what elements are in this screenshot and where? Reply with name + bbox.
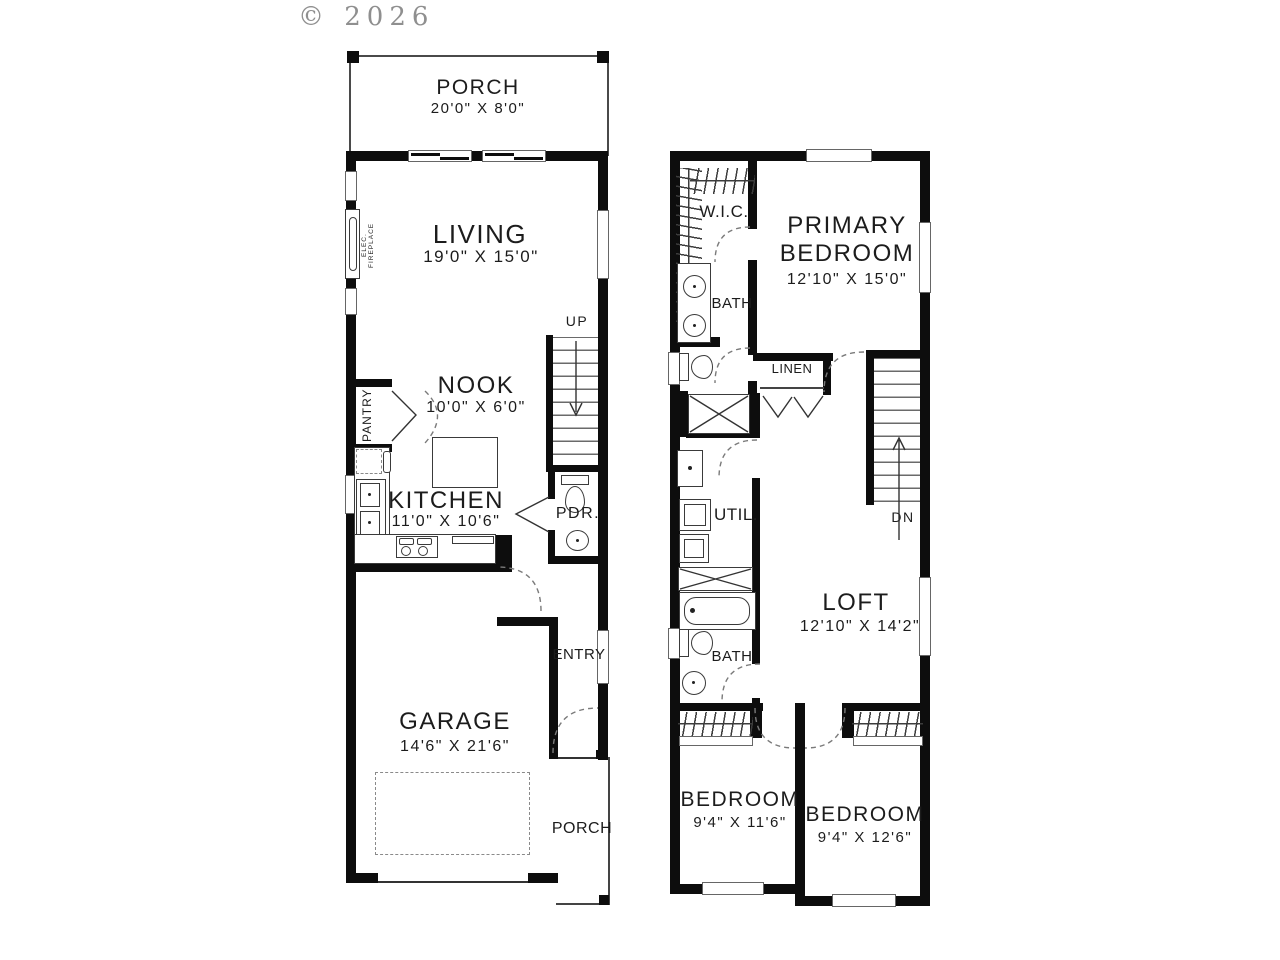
closet-rod bbox=[678, 712, 753, 736]
window bbox=[806, 149, 872, 162]
sliding-door-panel bbox=[440, 157, 469, 160]
stairs-down-label: DN bbox=[891, 509, 914, 525]
sliding-door bbox=[408, 150, 472, 162]
floorplan-canvas: © 2026 PORCH 20'0" X 8'0" ELEC. FIREPLAC… bbox=[0, 0, 1280, 960]
window bbox=[702, 882, 764, 895]
bedroom1-dims: 9'4" X 11'6" bbox=[693, 814, 786, 831]
door-swing bbox=[715, 348, 750, 383]
wall bbox=[549, 617, 558, 759]
closet-rod bbox=[852, 712, 923, 736]
sink-drain bbox=[368, 493, 371, 496]
pantry-label: PANTRY bbox=[360, 390, 374, 442]
range-burner bbox=[401, 546, 411, 556]
sliding-door-panel bbox=[411, 153, 440, 156]
loft-label: LOFT bbox=[822, 589, 889, 617]
bifold-door bbox=[763, 396, 823, 417]
bedroom1-label: BEDROOM bbox=[680, 788, 799, 812]
window bbox=[345, 288, 357, 315]
window bbox=[345, 171, 357, 201]
copyright-text: © 2026 bbox=[298, 2, 434, 32]
stairs-up bbox=[553, 337, 598, 465]
door-swing bbox=[715, 227, 750, 262]
living-dims: 19'0" X 15'0" bbox=[423, 247, 539, 267]
wall bbox=[823, 353, 831, 395]
wall bbox=[497, 617, 557, 626]
tub-faucet bbox=[690, 608, 695, 613]
wic-label: W.I.C. bbox=[699, 202, 748, 222]
sliding-door-panel bbox=[485, 153, 514, 156]
kitchen-dims: 11'0" X 10'6" bbox=[392, 513, 501, 531]
stairs-down bbox=[874, 358, 920, 504]
wall bbox=[548, 472, 555, 499]
refrigerator bbox=[356, 449, 382, 474]
living-label: LIVING bbox=[433, 220, 527, 250]
front-porch-dims: 20'0" X 8'0" bbox=[431, 100, 525, 117]
wall bbox=[866, 355, 874, 505]
window bbox=[919, 577, 931, 656]
sink-drain bbox=[688, 466, 692, 470]
garage-parking-outline bbox=[375, 772, 530, 855]
toilet-tank bbox=[561, 475, 589, 485]
nook-label: NOOK bbox=[438, 372, 515, 400]
wall bbox=[845, 703, 930, 711]
linen-cabinet bbox=[678, 567, 753, 591]
window bbox=[832, 894, 896, 907]
porch-post bbox=[347, 51, 359, 63]
hall-bath-label: BATH bbox=[712, 648, 753, 665]
door-swing bbox=[805, 708, 845, 748]
sink-drain bbox=[692, 681, 695, 684]
door-swing bbox=[722, 664, 760, 702]
wall bbox=[546, 335, 553, 469]
door-swing bbox=[497, 567, 541, 611]
garage-door bbox=[378, 873, 528, 883]
kitchen-island bbox=[432, 437, 498, 488]
sink-drain bbox=[693, 285, 696, 288]
closet-door bbox=[679, 736, 753, 746]
wall bbox=[672, 151, 930, 161]
pdr-door-leaf bbox=[516, 497, 549, 532]
kitchen-label: KITCHEN bbox=[388, 487, 504, 515]
front-porch-label: PORCH bbox=[436, 76, 519, 100]
rear-porch-label: PORCH bbox=[552, 820, 612, 838]
shower bbox=[688, 394, 750, 434]
garage-dims: 14'6" X 21'6" bbox=[400, 738, 510, 756]
wall bbox=[548, 530, 555, 558]
wall-oven bbox=[383, 451, 391, 473]
toilet-tank bbox=[679, 353, 689, 381]
primary-bedroom-label: PRIMARY BEDROOM bbox=[767, 212, 927, 267]
porch-post bbox=[599, 895, 609, 905]
front-door-opening bbox=[558, 750, 596, 759]
dishwasher bbox=[452, 536, 494, 544]
wall bbox=[548, 556, 608, 564]
linen-label: LINEN bbox=[772, 362, 813, 377]
primary-bath-label: BATH bbox=[712, 295, 753, 312]
washer-drum bbox=[684, 504, 706, 526]
closet-door bbox=[853, 736, 923, 746]
range-burner-plate bbox=[399, 538, 414, 545]
toilet-bowl bbox=[691, 631, 713, 655]
linen-shelf bbox=[760, 387, 824, 389]
stairs-up-label: UP bbox=[566, 313, 588, 329]
dryer-drum bbox=[684, 539, 704, 558]
nook-dims: 10'0" X 6'0" bbox=[426, 399, 526, 417]
pantry-door-leaf bbox=[392, 391, 416, 441]
range-burner-plate bbox=[417, 538, 432, 545]
wall bbox=[346, 563, 501, 572]
toilet-tank bbox=[679, 629, 689, 657]
door-swing bbox=[553, 708, 598, 753]
bedroom2-label: BEDROOM bbox=[805, 803, 924, 827]
sink-drain bbox=[368, 521, 371, 524]
powder-room-label: PDR. bbox=[556, 505, 600, 523]
fireplace-insert bbox=[349, 217, 357, 271]
window bbox=[597, 210, 609, 279]
symbols-overlay bbox=[0, 0, 1280, 960]
entry-label: ENTRY bbox=[552, 646, 605, 663]
wall bbox=[348, 379, 392, 387]
porch-post bbox=[597, 51, 609, 63]
door-swing bbox=[719, 440, 757, 478]
garage-label: GARAGE bbox=[399, 708, 511, 736]
sink-drain bbox=[693, 324, 696, 327]
loft-dims: 12'10" X 14'2" bbox=[800, 618, 920, 636]
range-burner bbox=[418, 546, 428, 556]
sliding-door-panel bbox=[514, 157, 543, 160]
wall bbox=[348, 151, 608, 161]
sink-drain bbox=[576, 539, 579, 542]
bedroom2-dims: 9'4" X 12'6" bbox=[818, 829, 912, 846]
sliding-door bbox=[482, 150, 546, 162]
toilet-bowl bbox=[691, 355, 713, 379]
wall bbox=[753, 353, 833, 361]
fireplace-label: ELEC. FIREPLACE bbox=[361, 211, 375, 279]
utility-label: UTIL. bbox=[714, 505, 758, 525]
primary-bedroom-dims: 12'10" X 15'0" bbox=[787, 271, 907, 289]
